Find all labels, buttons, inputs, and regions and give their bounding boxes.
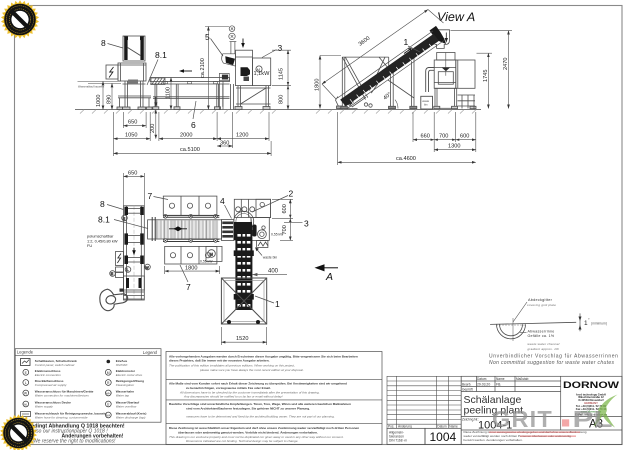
svg-text:650: 650 <box>128 119 137 125</box>
svg-text:Abdeckgitter: Abdeckgitter <box>528 298 553 302</box>
svg-text:FU: FU <box>87 243 92 248</box>
svg-text:1300: 1300 <box>448 143 460 149</box>
svg-text:M: M <box>210 252 213 257</box>
svg-text:Water hose for cleaning, custo: Water hose for cleaning, customerside <box>35 416 88 420</box>
svg-text:Maßstab: Maßstab <box>516 377 529 381</box>
svg-text:ON/OFF: ON/OFF <box>116 363 129 367</box>
svg-text:1050: 1050 <box>125 132 137 138</box>
svg-text:ca.5100: ca.5100 <box>180 147 200 153</box>
svg-text:1004: 1004 <box>430 430 457 444</box>
svg-text:Compressed air supply: Compressed air supply <box>35 383 67 387</box>
svg-text:Gefälle ca. 1%: Gefälle ca. 1% <box>528 334 555 338</box>
svg-text:measures have to be determined: measures have to be determined and fixed… <box>186 415 335 419</box>
svg-text:M: M <box>107 371 110 375</box>
svg-text:6: 6 <box>191 120 196 130</box>
svg-text:Datum: Datum <box>437 425 447 429</box>
svg-text:3: 3 <box>278 43 283 53</box>
svg-text:Zeichng.Nr.:: Zeichng.Nr.: <box>462 418 479 422</box>
svg-text:7: 7 <box>186 282 191 292</box>
svg-text:2000: 2000 <box>180 132 192 138</box>
svg-text:dieses Projektes, daß Sie imme: dieses Projektes, daß Sie immer mit der … <box>169 359 270 363</box>
svg-text:DORNOW: DORNOW <box>563 380 619 391</box>
svg-text:8.1: 8.1 <box>155 50 167 60</box>
svg-text:8.1: 8.1 <box>98 215 110 225</box>
svg-text:29.03.20: 29.03.20 <box>477 382 490 386</box>
svg-text:DIN 7168 -m: DIN 7168 -m <box>389 439 407 443</box>
svg-text:Cleaningdoor: Cleaningdoor <box>116 383 135 387</box>
svg-text:Änderung: Änderung <box>398 425 412 429</box>
svg-text:Name: Name <box>496 377 505 381</box>
svg-text:Electric connection: Electric connection <box>35 373 61 377</box>
svg-text:400: 400 <box>268 268 279 274</box>
svg-text:1145: 1145 <box>279 68 285 80</box>
svg-text:benutzt werden. Aenderungen vo: benutzt werden. Aenderungen vorbehalten. <box>464 438 523 442</box>
svg-text:Abwasserrinne: Abwasserrinne <box>528 330 555 334</box>
svg-text:1,1kW: 1,1kW <box>254 71 271 77</box>
svg-text:Water tap: Water tap <box>116 394 130 398</box>
svg-text:7: 7 <box>148 191 153 201</box>
svg-text:800: 800 <box>279 95 285 104</box>
svg-text:5: 5 <box>205 32 210 42</box>
svg-text:1800: 1800 <box>315 79 321 91</box>
svg-text:Datum: Datum <box>477 377 487 381</box>
svg-text:gradient approx. 1%: gradient approx. 1% <box>528 347 560 351</box>
svg-text:Bearb.: Bearb. <box>462 382 472 386</box>
svg-text:We reserve the right to m: We reserve the right to modifications! <box>33 439 116 445</box>
svg-text:1200: 1200 <box>236 132 248 138</box>
svg-text:Water overflow: Water overflow <box>116 405 137 409</box>
svg-text:covering grid plate: covering grid plate <box>527 303 556 307</box>
svg-text:2470: 2470 <box>503 58 509 70</box>
svg-text:Any discrepancies should be no: Any discrepancies should be notified to … <box>183 395 283 399</box>
svg-text:Water supply: Water supply <box>35 405 53 409</box>
svg-text:GRIT: GRIT <box>492 406 553 432</box>
svg-text:Electric motor drive: Electric motor drive <box>116 373 143 377</box>
svg-text:890: 890 <box>107 95 113 104</box>
svg-text:L: L <box>25 381 27 385</box>
svg-text:Control panel, switch cabinet: Control panel, switch cabinet <box>35 363 75 367</box>
svg-text:600: 600 <box>282 204 288 213</box>
svg-text:WA: WA <box>106 414 111 418</box>
svg-text:waste bin: waste bin <box>263 256 277 260</box>
svg-text:200: 200 <box>150 124 156 133</box>
svg-text:Water discharge (tap): Water discharge (tap) <box>116 416 146 420</box>
svg-text:600: 600 <box>460 133 469 139</box>
svg-text:700: 700 <box>439 133 448 139</box>
svg-text:Wasserablauf bauseits: Wasserablauf bauseits <box>78 84 105 88</box>
svg-text:sind vom Architekten/Bauherrn: sind vom Architekten/Bauherrn festzulege… <box>186 406 310 410</box>
svg-text:(minimum): (minimum) <box>591 322 607 326</box>
svg-text:1800: 1800 <box>185 265 197 271</box>
svg-text:2: 2 <box>289 189 294 199</box>
svg-text:W: W <box>145 266 149 270</box>
svg-text:zu benachrichtigen, vorzugswei: zu benachrichtigen, vorzugsweise mittels… <box>186 386 271 390</box>
svg-text:8: 8 <box>100 199 105 209</box>
svg-text:1: 1 <box>275 299 280 309</box>
svg-text:please make sure you have alwa: please make sure you have always the mos… <box>199 368 304 372</box>
svg-text:Name: Name <box>449 425 458 429</box>
svg-text:waste water channel: waste water channel <box>528 342 560 346</box>
svg-text:The publication of this editio: The publication of this edition invalida… <box>169 364 295 368</box>
svg-text:1: 1 <box>404 37 409 47</box>
svg-text:ca.2100: ca.2100 <box>200 58 206 78</box>
svg-text:Geprüft: Geprüft <box>462 387 473 391</box>
svg-text:3: 3 <box>304 219 309 229</box>
svg-text:bin: bin <box>424 102 428 106</box>
svg-text:FB.: FB. <box>496 382 501 386</box>
svg-text:L: L <box>127 268 129 272</box>
svg-text:360: 360 <box>220 141 229 147</box>
svg-text:1000: 1000 <box>96 95 102 107</box>
svg-text:0,55 kW: 0,55 kW <box>200 260 213 264</box>
svg-text:650: 650 <box>128 171 137 177</box>
svg-text:Dimensions indicated are not b: Dimensions indicated are not binding. Te… <box>186 439 299 443</box>
svg-text:1520: 1520 <box>236 336 248 342</box>
svg-text:700: 700 <box>282 225 288 234</box>
svg-text:WL: WL <box>24 403 29 407</box>
svg-text:Legende: Legende <box>17 350 34 355</box>
svg-text:Non committal suggestion fo: Non committal suggestion for waste water… <box>489 360 615 366</box>
svg-text:WH: WH <box>106 392 111 396</box>
svg-text:PL: PL <box>573 406 613 432</box>
svg-text:1745: 1745 <box>483 70 489 82</box>
svg-text:Pos.: Pos. <box>388 425 394 429</box>
svg-text:1100: 1100 <box>166 87 172 99</box>
svg-text:Water connection for machines/: Water connection for machines/devices <box>35 394 89 398</box>
svg-text:ca.4600: ca.4600 <box>396 156 416 162</box>
svg-text:8: 8 <box>101 38 106 48</box>
svg-text:4: 4 <box>220 196 225 206</box>
svg-text:überlassen oder anderweitig ge: überlassen oder anderweitig genutzt werd… <box>178 430 318 434</box>
svg-text:Legend: Legend <box>143 350 158 355</box>
svg-text:Unverbindlicher Vorschlag fü: Unverbindlicher Vorschlag für Abwasserri… <box>489 354 619 360</box>
svg-text:660: 660 <box>421 133 430 139</box>
svg-text:waste: waste <box>422 99 429 103</box>
svg-text:A: A <box>325 271 333 283</box>
